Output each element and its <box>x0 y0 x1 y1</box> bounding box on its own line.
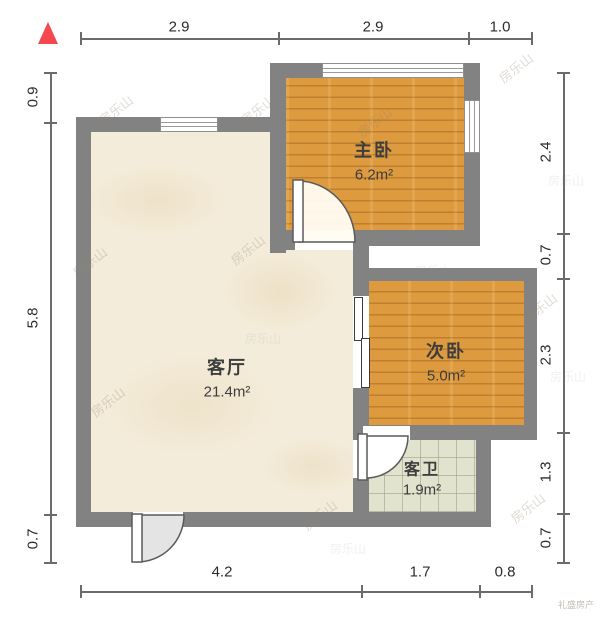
master-bedroom-label: 主卧 6.2m² <box>354 137 394 184</box>
entry-door <box>129 511 189 567</box>
window-living-top <box>160 117 218 132</box>
watermark: 房乐山 <box>506 488 548 527</box>
window-master-top <box>322 63 464 78</box>
dim-label: 4.2 <box>212 564 233 581</box>
dim-label: 2.3 <box>538 345 555 366</box>
master-bedroom-door <box>291 177 357 245</box>
watermark-faint: 房乐山 <box>550 368 586 385</box>
floor-plan: 客厅 21.4m² 主卧 6.2m² 次卧 5.0m² 客卫 1.9m² 2.9… <box>0 0 609 620</box>
dim-label: 1.7 <box>410 564 431 581</box>
window-glazing-line <box>323 72 463 73</box>
room-name: 次卧 <box>426 338 466 364</box>
room-name: 主卧 <box>354 137 394 163</box>
wall-left <box>76 117 91 527</box>
north-arrow-icon <box>38 22 58 44</box>
living-room-label: 客厅 21.4m² <box>204 354 251 401</box>
sliding-door-panel <box>361 338 370 388</box>
dim-label: 0.8 <box>495 564 516 581</box>
dim-label: 0.9 <box>25 87 42 108</box>
room-area: 6.2m² <box>354 167 394 184</box>
room-name: 客厅 <box>204 354 251 380</box>
window-glazing-line <box>161 122 217 123</box>
room-area: 21.4m² <box>204 384 251 401</box>
bathroom-label: 客卫 1.9m² <box>403 456 441 499</box>
dim-label: 0.7 <box>538 528 555 549</box>
room-area: 5.0m² <box>426 368 466 385</box>
dim-label: 2.9 <box>169 19 190 36</box>
watermark-faint: 房乐山 <box>548 172 584 189</box>
watermark-faint: 房乐山 <box>330 540 366 557</box>
room-area: 1.9m² <box>403 482 441 499</box>
wall-master-right <box>464 63 480 246</box>
brand-watermark: 礼盛房产 <box>558 598 594 611</box>
dim-label: 1.3 <box>538 462 555 483</box>
dim-label: 0.7 <box>25 529 42 550</box>
dim-label: 0.7 <box>538 245 555 266</box>
dim-label: 2.4 <box>538 142 555 163</box>
window-glazing-line <box>469 101 470 152</box>
wall-second-top <box>353 268 537 281</box>
dim-label: 2.9 <box>363 19 384 36</box>
wall-second-right <box>524 268 537 440</box>
wall-master-bottom <box>353 230 480 246</box>
second-bedroom-label: 次卧 5.0m² <box>426 338 466 385</box>
window-glazing-line <box>474 101 475 152</box>
room-name: 客卫 <box>403 456 441 480</box>
window-glazing-line <box>161 126 217 127</box>
dim-label: 1.0 <box>490 19 511 36</box>
wall-mid-lower <box>353 388 369 428</box>
wall-master-left <box>270 63 286 253</box>
dim-label: 5.8 <box>25 308 42 329</box>
window-master-right <box>464 100 480 153</box>
window-glazing-line <box>323 68 463 69</box>
watermark: 房乐山 <box>494 48 536 87</box>
sliding-door-panel <box>354 297 363 341</box>
